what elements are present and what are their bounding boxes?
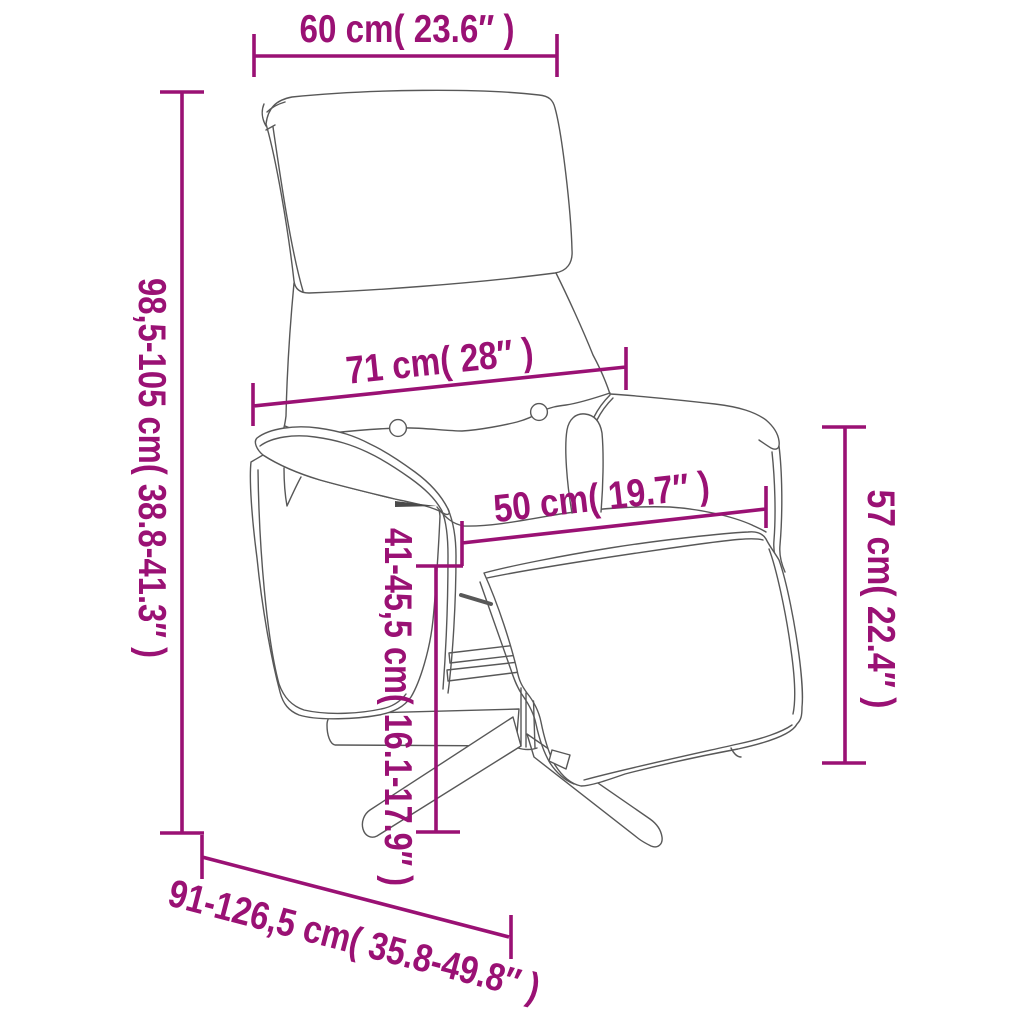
svg-text:98,5-105 cm( 38.8-41.3″ ): 98,5-105 cm( 38.8-41.3″ ) — [130, 278, 173, 658]
svg-text:41-45,5 cm( 16.1-17.9″ ): 41-45,5 cm( 16.1-17.9″ ) — [376, 528, 419, 886]
svg-text:57 cm( 22.4″ ): 57 cm( 22.4″ ) — [859, 490, 902, 709]
svg-text:60 cm( 23.6″ ): 60 cm( 23.6″ ) — [300, 8, 515, 51]
